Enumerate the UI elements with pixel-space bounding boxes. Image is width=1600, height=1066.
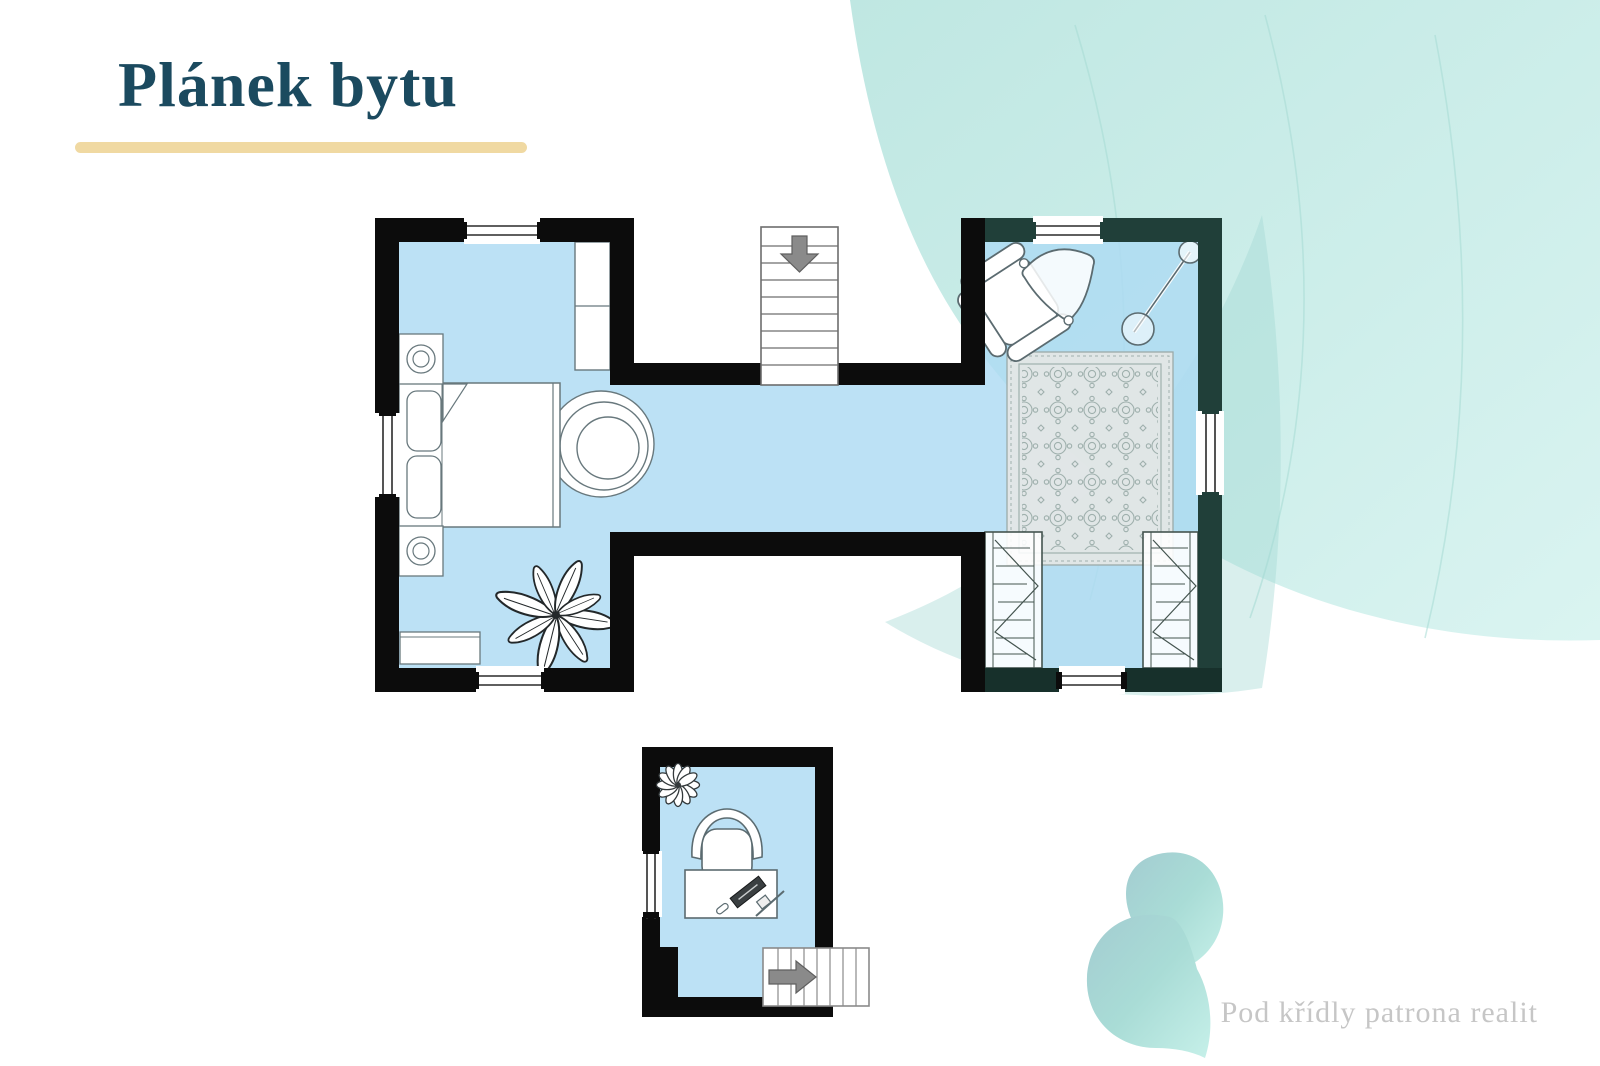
slide-graphics: [0, 0, 1600, 1066]
tall-cabinet: [575, 242, 610, 370]
page-title: Plánek bytu: [118, 48, 458, 122]
office-staircase: [763, 948, 869, 1006]
desk: [685, 870, 784, 918]
bedroom-left-window: [373, 410, 401, 500]
floorplan: [373, 216, 1224, 1017]
living-room-right-window: [1196, 408, 1224, 498]
bedroom-bottom-window: [473, 666, 547, 694]
hallway-staircase: [761, 227, 838, 385]
living-room-top-window: [1030, 216, 1106, 244]
pillow: [407, 391, 441, 451]
papasan-round-chair: [548, 391, 654, 497]
footer-tagline: Pod křídly patrona realit: [1221, 996, 1538, 1030]
low-dresser: [400, 632, 480, 664]
bedroom-top-window: [461, 216, 543, 244]
nightstand-with-lamp: [399, 334, 443, 384]
office-left-window: [640, 848, 662, 919]
hallway-floor: [610, 385, 985, 532]
open-wardrobe-right: [1143, 532, 1198, 668]
living-room-bottom-window: [1056, 666, 1127, 694]
nightstand-with-lamp: [399, 526, 443, 576]
open-wardrobe-left: [985, 532, 1042, 668]
title-underline: [75, 142, 527, 153]
brand-logo: [1087, 852, 1223, 1058]
slide: Plánek bytu Pod křídly patrona realit: [0, 0, 1600, 1066]
pillow: [407, 456, 441, 518]
double-bed: [399, 383, 560, 527]
